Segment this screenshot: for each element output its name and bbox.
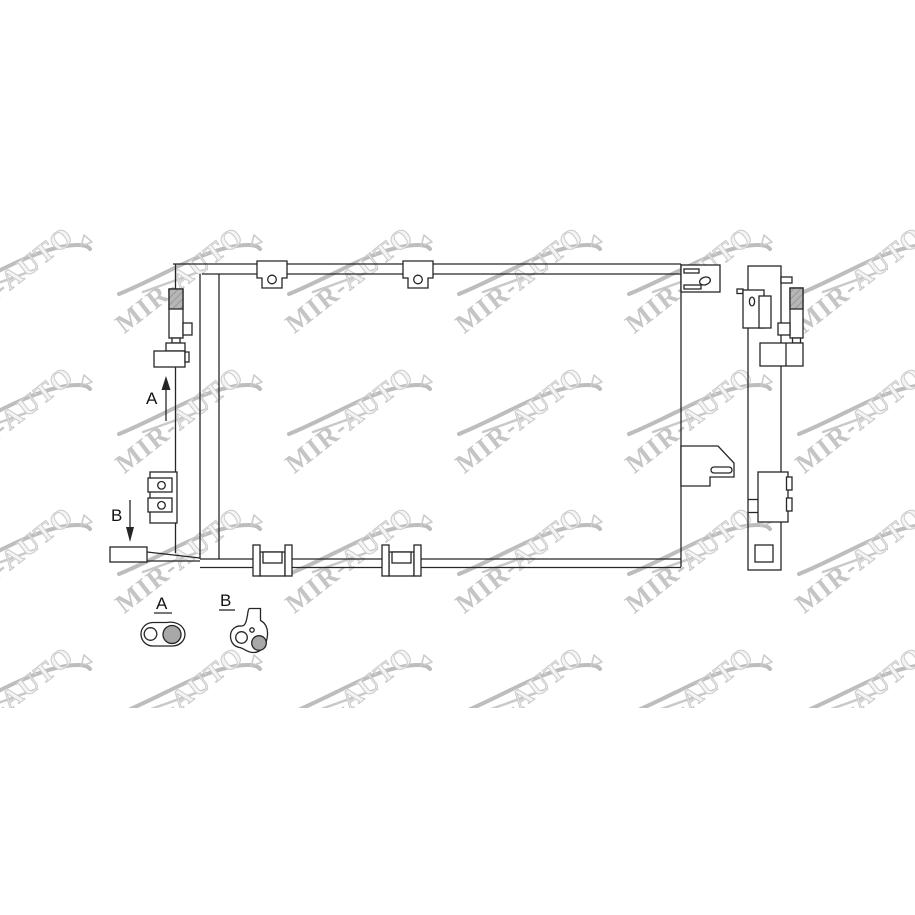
condenser-frame bbox=[173, 264, 681, 568]
mounting-bracket-left bbox=[148, 472, 177, 523]
detail-view-b: B bbox=[219, 591, 268, 653]
detail-b-port bbox=[252, 636, 267, 651]
mid-right-mounting-bracket bbox=[681, 446, 734, 486]
top-mounting-clip-2 bbox=[403, 261, 433, 288]
flow-arrow-a-label: A bbox=[146, 389, 158, 408]
detail-b-label: B bbox=[220, 591, 231, 610]
drier-cap-hatched bbox=[169, 289, 183, 309]
fitting-cap-hatched bbox=[790, 288, 803, 309]
flow-arrow-b: B bbox=[111, 500, 134, 542]
condenser-technical-drawing: A B bbox=[0, 0, 915, 915]
bottom-mounting-clip-2 bbox=[382, 545, 421, 576]
side-bracket-right bbox=[737, 289, 771, 328]
top-right-bracket bbox=[681, 265, 720, 292]
top-mounting-clip-1 bbox=[257, 261, 287, 288]
flow-arrow-a: A bbox=[146, 376, 171, 421]
lower-bracket-right bbox=[758, 472, 792, 522]
pipe-connector-b bbox=[110, 547, 200, 562]
flow-arrow-b-label: B bbox=[111, 506, 122, 525]
detail-view-a: A bbox=[141, 594, 185, 646]
detail-a-port bbox=[163, 626, 181, 644]
bottom-mounting-clip-1 bbox=[253, 545, 292, 576]
detail-a-label: A bbox=[156, 594, 168, 613]
